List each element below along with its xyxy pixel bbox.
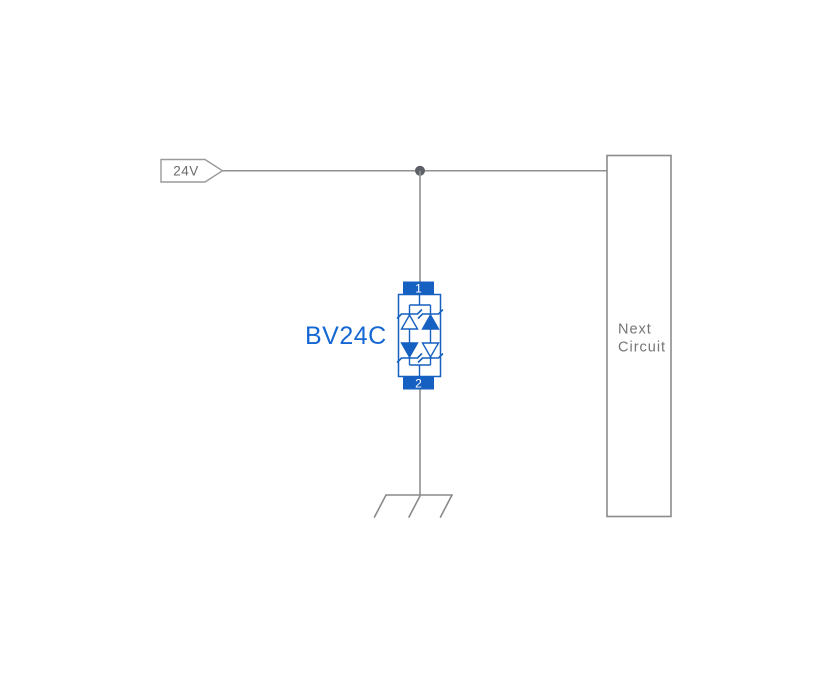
next-circuit-label-line1: Next — [618, 322, 652, 338]
next-circuit-label-line2: Circuit — [618, 340, 666, 356]
tvs-component: 1 2 — [398, 282, 443, 391]
pin-1-label: 1 — [415, 282, 422, 296]
ground-hatch-middle — [409, 495, 421, 517]
component-label: BV24C — [305, 322, 387, 350]
component-body — [399, 295, 441, 377]
circuit-diagram: 24V 1 — [0, 0, 832, 675]
ground-hatch-left — [375, 495, 387, 517]
schematic-canvas: 24V 1 — [0, 0, 832, 675]
chassis-ground-icon — [375, 495, 453, 517]
pin-2-label: 2 — [415, 377, 422, 391]
net-label-text: 24V — [173, 164, 199, 179]
ground-hatch-right — [441, 495, 453, 517]
next-circuit-block: Next Circuit — [607, 156, 671, 517]
net-label-24v: 24V — [161, 160, 223, 183]
